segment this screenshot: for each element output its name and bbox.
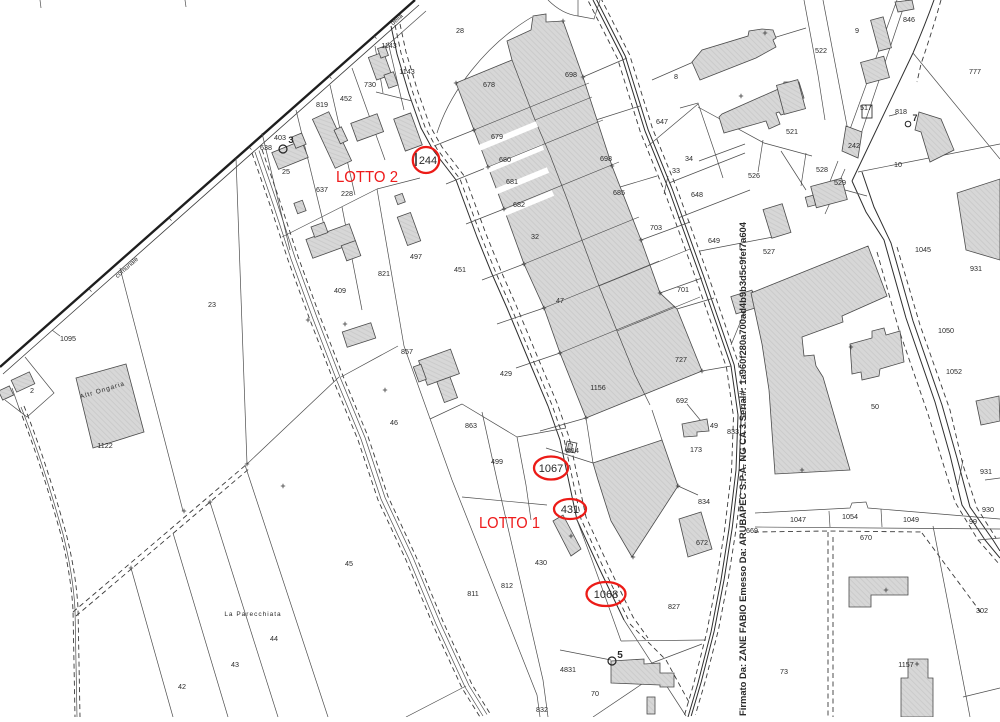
svg-text:931: 931	[980, 467, 992, 476]
svg-text:521: 521	[786, 127, 798, 136]
svg-text:1050: 1050	[938, 326, 954, 335]
svg-text:682: 682	[513, 200, 525, 209]
svg-text:529: 529	[834, 178, 846, 187]
svg-text:2: 2	[30, 386, 34, 395]
svg-text:70: 70	[591, 689, 599, 698]
svg-text:99: 99	[969, 517, 977, 526]
svg-text:1068: 1068	[594, 589, 618, 601]
svg-text:1067: 1067	[539, 463, 563, 475]
svg-text:821: 821	[378, 269, 390, 278]
svg-text:685: 685	[613, 188, 625, 197]
svg-text:679: 679	[491, 132, 503, 141]
svg-text:670: 670	[860, 533, 872, 542]
svg-text:43: 43	[231, 660, 239, 669]
svg-text:1156: 1156	[590, 383, 605, 392]
svg-text:727: 727	[675, 355, 687, 364]
svg-text:8: 8	[674, 72, 678, 81]
svg-text:846: 846	[903, 15, 915, 24]
svg-text:1122: 1122	[97, 441, 112, 450]
svg-text:4831: 4831	[560, 665, 576, 674]
svg-text:1095: 1095	[60, 334, 76, 343]
svg-text:1054: 1054	[842, 512, 858, 521]
svg-text:LOTTO 1: LOTTO 1	[479, 515, 540, 532]
svg-text:452: 452	[340, 94, 352, 103]
svg-text:499: 499	[491, 457, 503, 466]
svg-text:9: 9	[855, 26, 859, 35]
svg-text:46: 46	[390, 418, 398, 427]
svg-text:32: 32	[531, 232, 539, 241]
svg-text:242: 242	[848, 141, 860, 150]
svg-text:28: 28	[456, 26, 464, 35]
svg-text:1143: 1143	[399, 67, 414, 76]
svg-text:698: 698	[600, 154, 612, 163]
svg-text:430: 430	[535, 558, 547, 567]
svg-text:429: 429	[500, 369, 512, 378]
svg-text:403: 403	[274, 133, 286, 142]
svg-text:930: 930	[982, 505, 994, 514]
svg-text:832: 832	[536, 705, 548, 714]
svg-text:42: 42	[178, 682, 186, 691]
svg-text:527: 527	[763, 247, 775, 256]
svg-text:73: 73	[780, 667, 788, 676]
svg-text:47: 47	[556, 296, 564, 305]
svg-text:678: 678	[483, 80, 495, 89]
svg-text:1045: 1045	[915, 245, 931, 254]
svg-text:173: 173	[690, 445, 702, 454]
svg-text:431: 431	[561, 504, 579, 516]
svg-text:25: 25	[282, 167, 290, 176]
svg-text:1143: 1143	[381, 41, 396, 50]
svg-text:La Parecchiata: La Parecchiata	[224, 611, 281, 618]
svg-text:497: 497	[410, 252, 422, 261]
svg-text:528: 528	[816, 165, 828, 174]
svg-text:681: 681	[506, 177, 518, 186]
svg-text:834: 834	[698, 497, 710, 506]
svg-text:33: 33	[672, 166, 680, 175]
svg-text:812: 812	[501, 581, 513, 590]
svg-text:50: 50	[871, 402, 879, 411]
svg-text:1047: 1047	[790, 515, 806, 524]
svg-text:23: 23	[208, 300, 216, 309]
svg-text:526: 526	[748, 171, 760, 180]
svg-text:649: 649	[708, 236, 720, 245]
svg-text:1049: 1049	[903, 515, 919, 524]
svg-text:703: 703	[650, 223, 662, 232]
svg-text:7: 7	[912, 113, 917, 123]
svg-text:451: 451	[454, 265, 466, 274]
svg-text:228: 228	[341, 189, 353, 198]
svg-text:10: 10	[894, 160, 902, 169]
svg-text:517: 517	[860, 103, 872, 112]
svg-text:3: 3	[288, 135, 293, 146]
svg-text:692: 692	[676, 396, 688, 405]
svg-text:409: 409	[334, 286, 346, 295]
svg-text:931: 931	[970, 264, 982, 273]
svg-text:1157: 1157	[898, 660, 913, 669]
svg-text:818: 818	[895, 107, 907, 116]
svg-text:5: 5	[617, 650, 623, 661]
svg-text:701: 701	[677, 285, 689, 294]
svg-text:49: 49	[710, 421, 718, 430]
svg-text:672: 672	[696, 538, 708, 547]
svg-text:522: 522	[815, 46, 827, 55]
svg-text:863: 863	[465, 421, 477, 430]
svg-text:244: 244	[419, 155, 437, 167]
svg-text:44: 44	[270, 634, 278, 643]
svg-text:730: 730	[364, 80, 376, 89]
svg-text:45: 45	[345, 559, 353, 568]
svg-text:LOTTO 2: LOTTO 2	[336, 169, 398, 186]
svg-text:302: 302	[976, 606, 988, 615]
svg-text:Firmato Da: ZANE FABIO Emesso: Firmato Da: ZANE FABIO Emesso Da: ARUBAP…	[738, 221, 748, 716]
svg-text:698: 698	[565, 70, 577, 79]
svg-text:637: 637	[316, 185, 328, 194]
svg-text:857: 857	[401, 347, 413, 356]
svg-text:680: 680	[499, 155, 511, 164]
svg-text:811: 811	[467, 589, 478, 598]
svg-text:648: 648	[691, 190, 703, 199]
svg-text:638: 638	[260, 143, 272, 152]
svg-text:814: 814	[567, 446, 579, 455]
svg-text:1052: 1052	[946, 367, 962, 376]
svg-text:647: 647	[656, 117, 668, 126]
svg-text:819: 819	[316, 100, 328, 109]
svg-text:827: 827	[668, 602, 680, 611]
svg-text:34: 34	[685, 154, 693, 163]
svg-text:777: 777	[969, 67, 981, 76]
